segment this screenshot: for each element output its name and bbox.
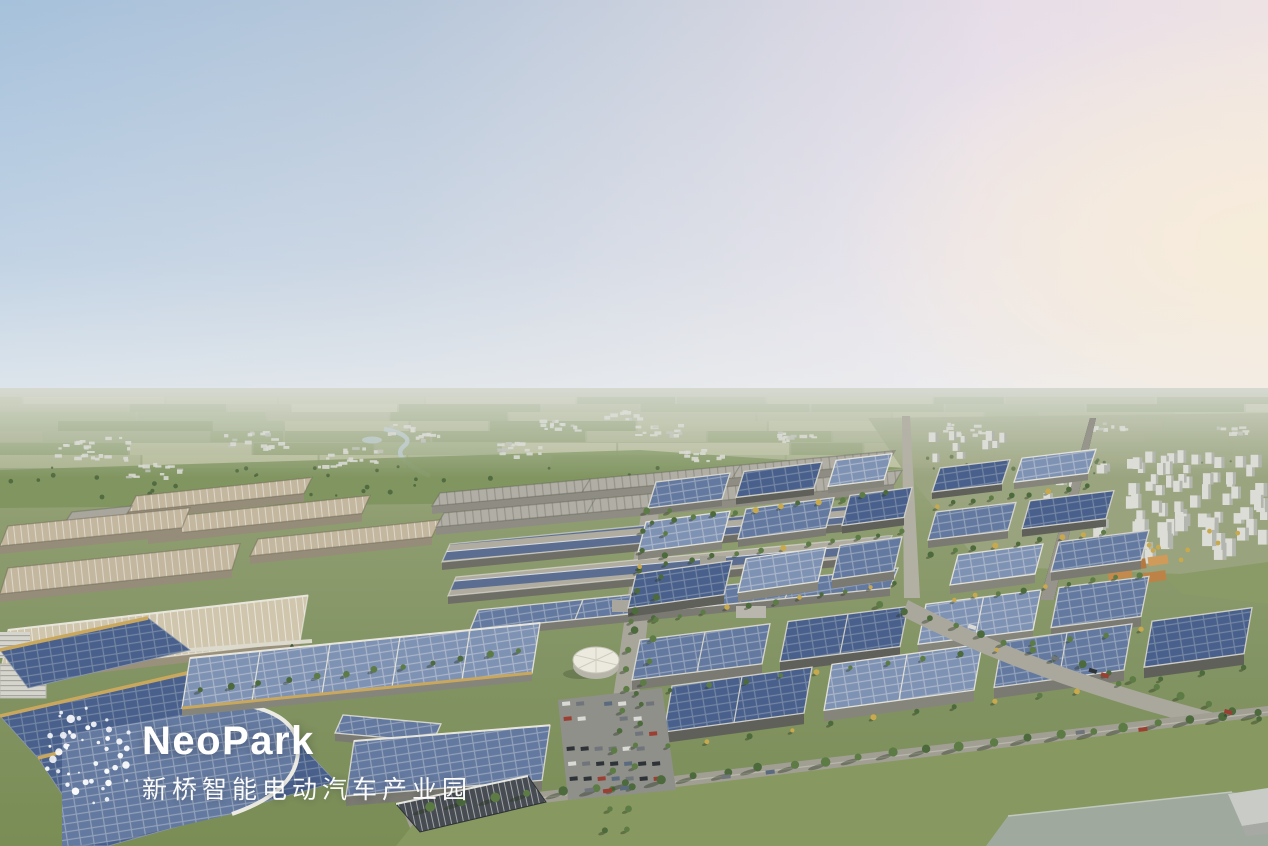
dot-constellation-logo-icon <box>34 702 138 806</box>
logo-subtitle: 新桥智能电动汽车产业园 <box>142 770 472 806</box>
neopark-logo: NeoPark 新桥智能电动汽车产业园 <box>34 702 472 806</box>
aerial-render-neopark: NeoPark 新桥智能电动汽车产业园 <box>0 0 1268 846</box>
logo-wordmark: NeoPark <box>142 720 472 762</box>
